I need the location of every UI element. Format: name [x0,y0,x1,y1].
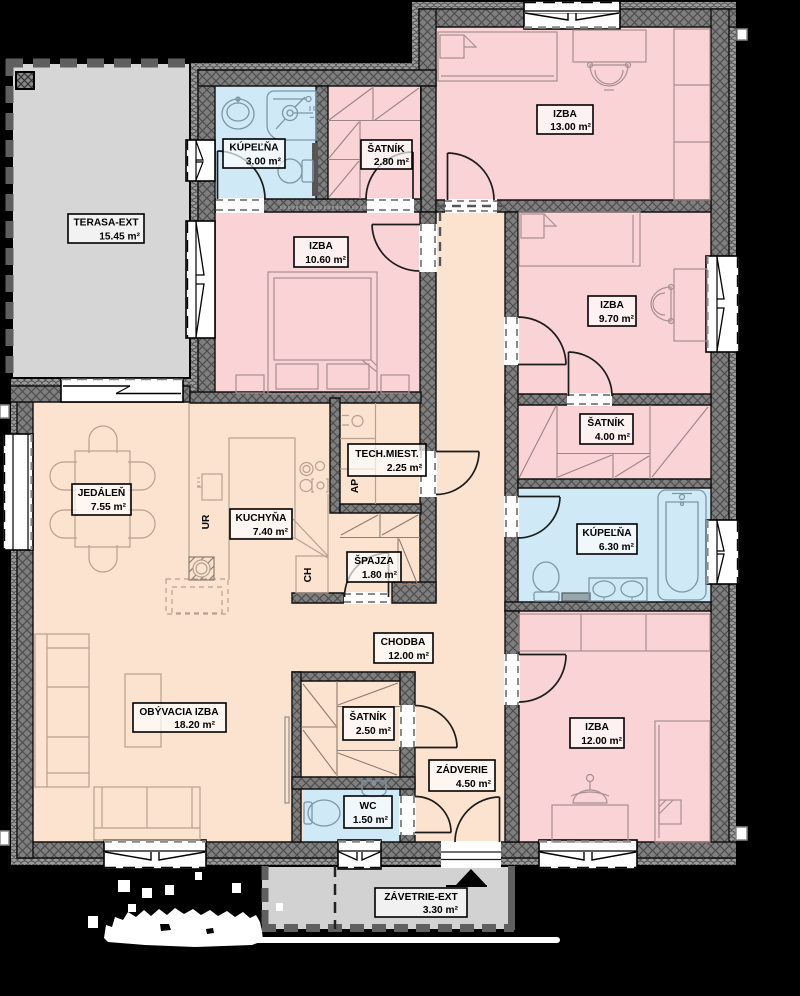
svg-text:WC: WC [360,801,378,812]
svg-text:12.00 m²: 12.00 m² [581,736,622,747]
svg-text:JEDÁLEŇ: JEDÁLEŇ [78,486,126,499]
svg-text:OBÝVACIA IZBA: OBÝVACIA IZBA [139,705,219,718]
svg-text:AP: AP [350,479,361,493]
svg-text:KUCHYŇA: KUCHYŇA [236,511,288,524]
svg-text:ŠATNÍK: ŠATNÍK [349,710,387,723]
svg-text:IZBA: IZBA [309,241,333,252]
svg-text:2.50 m²: 2.50 m² [356,726,392,737]
svg-text:CH: CH [303,568,314,583]
svg-text:KÚPEĽŇA: KÚPEĽŇA [582,526,632,539]
svg-text:IZBA: IZBA [585,722,609,733]
svg-text:9.70 m²: 9.70 m² [599,314,635,325]
svg-text:3.30 m²: 3.30 m² [423,905,459,916]
svg-text:ZÁDVERIE: ZÁDVERIE [436,763,488,776]
svg-text:6.30 m²: 6.30 m² [599,542,635,553]
svg-text:2.25 m²: 2.25 m² [387,463,423,474]
svg-text:2.80 m²: 2.80 m² [374,157,410,168]
svg-text:TERASA-EXT: TERASA-EXT [73,218,139,229]
svg-text:13.00 m²: 13.00 m² [550,122,591,133]
svg-text:1.50 m²: 1.50 m² [353,815,389,826]
svg-text:KÚPEĽŇA: KÚPEĽŇA [229,141,279,154]
svg-text:ZÁVETRIE-EXT: ZÁVETRIE-EXT [384,890,458,903]
svg-text:ŠPAJZA: ŠPAJZA [354,554,394,567]
svg-text:ŠATNÍK: ŠATNÍK [367,142,405,155]
svg-text:12.00 m²: 12.00 m² [388,651,429,662]
svg-text:IZBA: IZBA [600,300,624,311]
svg-text:UR: UR [201,514,212,529]
svg-text:4.00 m²: 4.00 m² [595,432,631,443]
svg-text:7.55 m²: 7.55 m² [91,502,127,513]
svg-text:CHODBA: CHODBA [381,637,426,648]
svg-text:4.50 m²: 4.50 m² [456,779,492,790]
svg-text:7.40 m²: 7.40 m² [253,527,289,538]
svg-text:10.60 m²: 10.60 m² [305,255,346,266]
svg-text:18.20 m²: 18.20 m² [174,720,215,731]
svg-text:TECH.MIEST.: TECH.MIEST. [355,449,419,460]
svg-text:ŠATNÍK: ŠATNÍK [587,416,625,429]
svg-text:3.00 m²: 3.00 m² [246,157,282,168]
svg-text:IZBA: IZBA [553,109,577,120]
svg-text:15.45 m²: 15.45 m² [99,232,140,243]
svg-text:1.80 m²: 1.80 m² [362,570,398,581]
